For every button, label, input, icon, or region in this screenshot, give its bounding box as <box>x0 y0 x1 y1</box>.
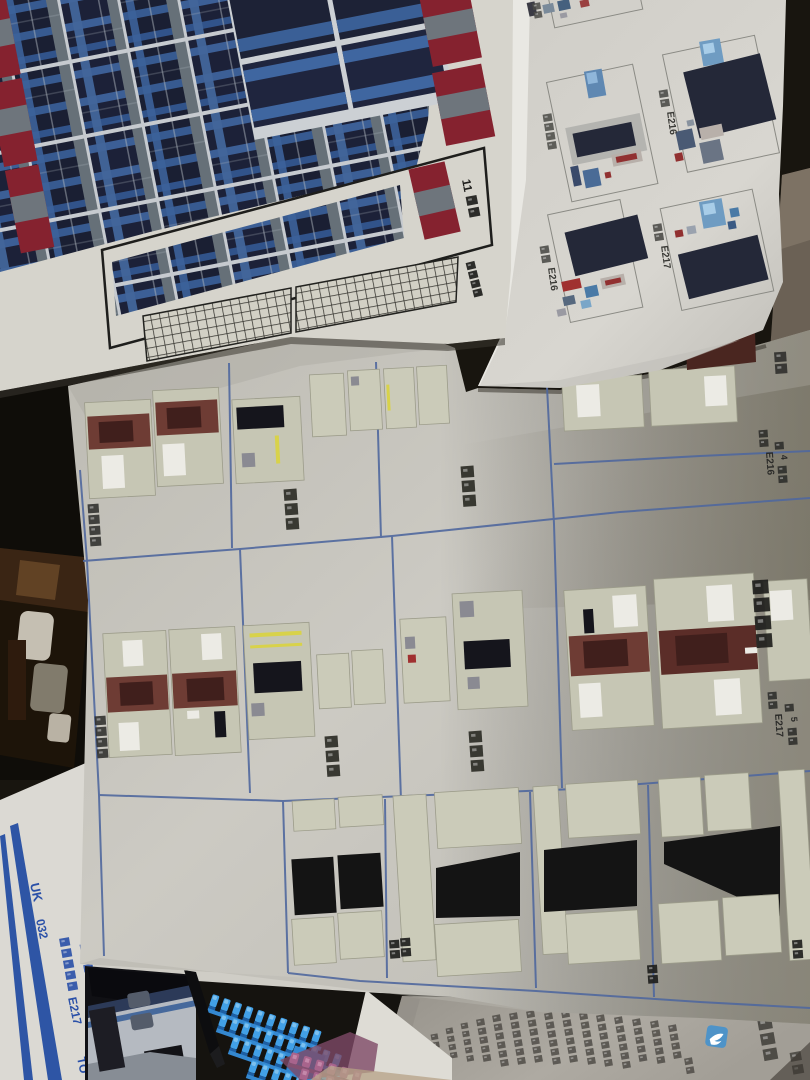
svg-text:E216: E216 <box>763 451 776 476</box>
svg-text:4: 4 <box>779 454 789 460</box>
svg-text:E217: E217 <box>772 713 785 738</box>
svg-text:5: 5 <box>789 716 799 722</box>
